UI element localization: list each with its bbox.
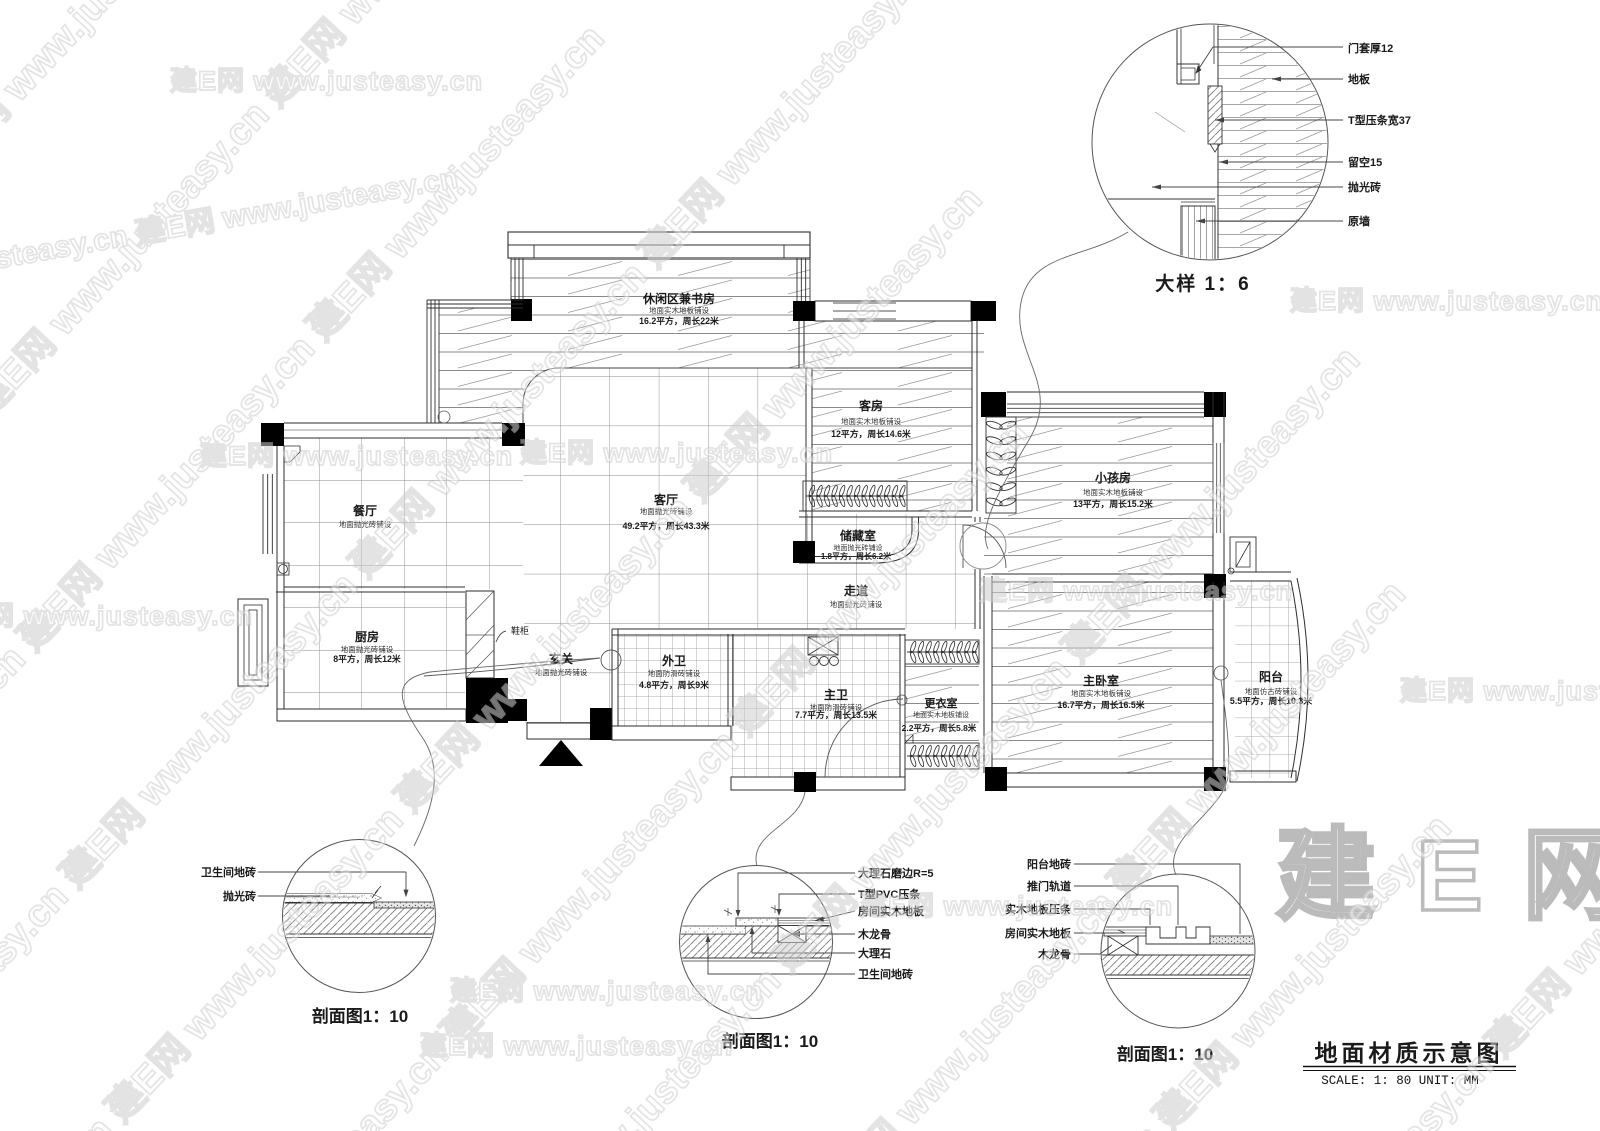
svg-text:更衣室: 更衣室 [925,696,958,710]
svg-text:建E网 www.justeasy.cn: 建E网 www.justeasy.cn [0,601,253,631]
svg-text:抛光砖: 抛光砖 [1348,180,1381,194]
svg-text:4.8平方，周长9米: 4.8平方，周长9米 [639,679,709,690]
svg-text:主卧室: 主卧室 [1083,673,1119,688]
svg-text:2.2平方，周长5.8米: 2.2平方，周长5.8米 [902,723,977,733]
svg-text:地面实木地板铺设: 地面实木地板铺设 [649,305,709,315]
svg-text:小孩房: 小孩房 [1095,470,1131,485]
svg-text:留空15: 留空15 [1348,155,1382,169]
svg-text:13平方，周长15.2米: 13平方，周长15.2米 [1073,498,1153,509]
svg-text:建E网 www.justeasy.cn: 建E网 www.justeasy.cn [200,441,513,471]
svg-text:阳台: 阳台 [1259,669,1283,684]
svg-text:储藏室: 储藏室 [840,528,876,543]
svg-text:厨房: 厨房 [355,629,379,644]
svg-text:建E网 www.justeasy.cn: 建E网 www.justeasy.cn [420,1031,733,1061]
svg-text:餐厅: 餐厅 [353,503,377,518]
svg-text:地板: 地板 [1348,72,1371,86]
svg-text:外卫: 外卫 [662,653,686,668]
svg-text:地面实木地板铺设: 地面实木地板铺设 [913,710,969,719]
svg-text:抛光砖: 抛光砖 [223,889,256,903]
svg-text:阳台地砖: 阳台地砖 [1027,857,1071,871]
svg-text:卫生间地砖: 卫生间地砖 [201,865,256,879]
svg-text:7.7平方，周长13.5米: 7.7平方，周长13.5米 [795,709,877,720]
svg-text:鞋柜: 鞋柜 [511,625,529,636]
svg-text:地面抛光砖铺设: 地面抛光砖铺设 [341,644,394,654]
svg-text:建E网 www.justeasy.cn: 建E网 www.justeasy.cn [450,976,763,1006]
svg-text:16.7平方，周长16.5米: 16.7平方，周长16.5米 [1057,699,1144,710]
svg-text:建E网 www.justeasy.cn: 建E网 www.justeasy.cn [170,66,483,96]
svg-text:原墙: 原墙 [1348,214,1370,228]
svg-text:建E网 www.justeasy.cn: 建E网 www.justeasy.cn [1400,676,1600,706]
svg-text:建E网 www.justeasy.cn: 建E网 www.justeasy.cn [1290,286,1600,316]
svg-text:大理石: 大理石 [858,946,891,960]
svg-text:建E网 www.justeasy.cn: 建E网 www.justeasy.cn [860,891,1173,921]
svg-text:休闲区兼书房: 休闲区兼书房 [642,291,715,306]
svg-text:16.2平方，周长22米: 16.2平方，周长22米 [639,315,719,326]
svg-text:建E网 www.justeasy.cn: 建E网 www.justeasy.cn [520,438,833,468]
svg-text:主卫: 主卫 [824,687,848,702]
svg-text:木龙骨: 木龙骨 [857,927,891,941]
svg-text:T型压条宽37: T型压条宽37 [1348,113,1411,127]
svg-text:8平方，周长12米: 8平方，周长12米 [333,653,401,664]
svg-text:地面实木地板铺设: 地面实木地板铺设 [1071,688,1131,698]
svg-text:大样 1：6: 大样 1：6 [1155,272,1250,295]
svg-text:门套厚12: 门套厚12 [1348,41,1393,55]
svg-text:建E网 www.justeasy.cn: 建E网 www.justeasy.cn [980,576,1293,606]
svg-text:地面实木地板铺设: 地面实木地板铺设 [1083,487,1143,497]
svg-text:客房: 客房 [858,398,883,413]
svg-text:12平方，周长14.6米: 12平方，周长14.6米 [831,428,911,439]
svg-text:卫生间地砖: 卫生间地砖 [858,967,913,981]
svg-text:地面防滑砖铺设: 地面防滑砖铺设 [648,668,701,678]
svg-text:剖面图1：10: 剖面图1：10 [312,1006,408,1026]
svg-text:地面实木地板铺设: 地面实木地板铺设 [841,416,901,426]
